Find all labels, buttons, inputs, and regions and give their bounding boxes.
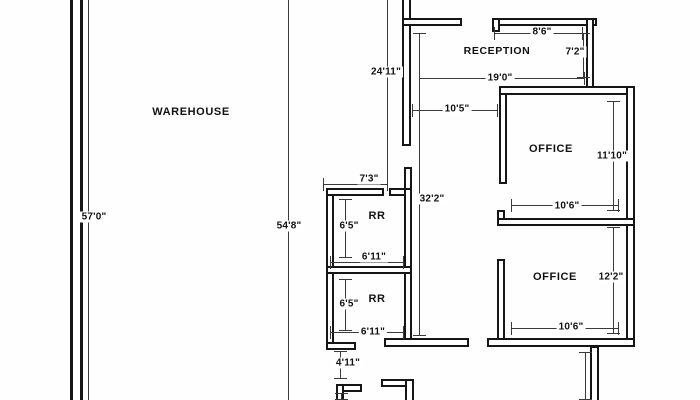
- dim-line-bottom-right: [585, 352, 586, 400]
- dim-label-6-5-upper: 6'5": [337, 221, 360, 232]
- rr-lower-label: RR: [368, 293, 385, 305]
- dim-label-8-6: 8'6": [530, 27, 553, 38]
- wall-reception-top-right: [492, 18, 597, 26]
- dim-label-10-6-upper: 10'6": [553, 201, 582, 212]
- wall-bm-corner-v: [405, 379, 414, 400]
- dim-label-32-2: 32'2": [418, 194, 447, 205]
- wall-office-top: [499, 86, 635, 95]
- dim-label-12-2: 12'2": [597, 272, 626, 283]
- wall-bottom-middle: [384, 338, 469, 347]
- reception-label: RECEPTION: [464, 45, 531, 57]
- wall-bottom-right: [487, 338, 635, 347]
- wall-rr-divider: [326, 266, 412, 274]
- dim-label-57-0: 57'0": [80, 212, 109, 223]
- wall-br-lower: [590, 346, 599, 400]
- dim-line-54-8: [288, 0, 289, 400]
- dim-label-10-6-lower: 10'6": [557, 322, 586, 333]
- dim-label-10-5: 10'5": [443, 104, 472, 115]
- floor-plan: 57'0" 54'8" 24'11" 32'2" 19'0" 10'5" 8'6…: [0, 0, 700, 400]
- dim-label-4-11: 4'11": [334, 358, 362, 369]
- dim-label-19-0: 19'0": [486, 73, 515, 84]
- dim-label-6-11-upper: 6'11": [360, 252, 388, 263]
- dim-line-bottom-left: [341, 393, 342, 400]
- wall-rr-top-left: [326, 188, 384, 196]
- dim-label-7-3: 7'3": [357, 174, 380, 185]
- wall-reception-top-left: [402, 18, 462, 26]
- wall-rr-right: [404, 188, 412, 340]
- office-upper-label: OFFICE: [529, 143, 573, 155]
- dim-line-57-0: [88, 0, 89, 400]
- dim-label-11-10: 11'10": [595, 151, 629, 162]
- office-lower-label: OFFICE: [533, 271, 577, 283]
- dim-line-24-11: [387, 0, 388, 185]
- rr-upper-label: RR: [368, 210, 385, 222]
- wall-office-upper-left: [499, 93, 507, 184]
- dim-label-7-2: 7'2": [563, 47, 586, 58]
- dim-label-54-8: 54'8": [275, 221, 304, 232]
- dim-label-6-11-lower: 6'11": [359, 327, 387, 338]
- wall-bl-corner-v: [336, 384, 344, 400]
- wall-right-outer: [626, 86, 635, 347]
- wall-office-lower-left: [497, 259, 505, 346]
- warehouse-label: WAREHOUSE: [152, 106, 230, 118]
- dim-label-24-11: 24'11": [369, 67, 403, 78]
- wall-rr-bottom-left: [326, 342, 356, 350]
- wall-office-divider: [497, 218, 635, 226]
- wall-left-outer: [70, 0, 83, 400]
- dim-label-6-5-lower: 6'5": [337, 299, 360, 310]
- wall-reception-right: [586, 18, 594, 92]
